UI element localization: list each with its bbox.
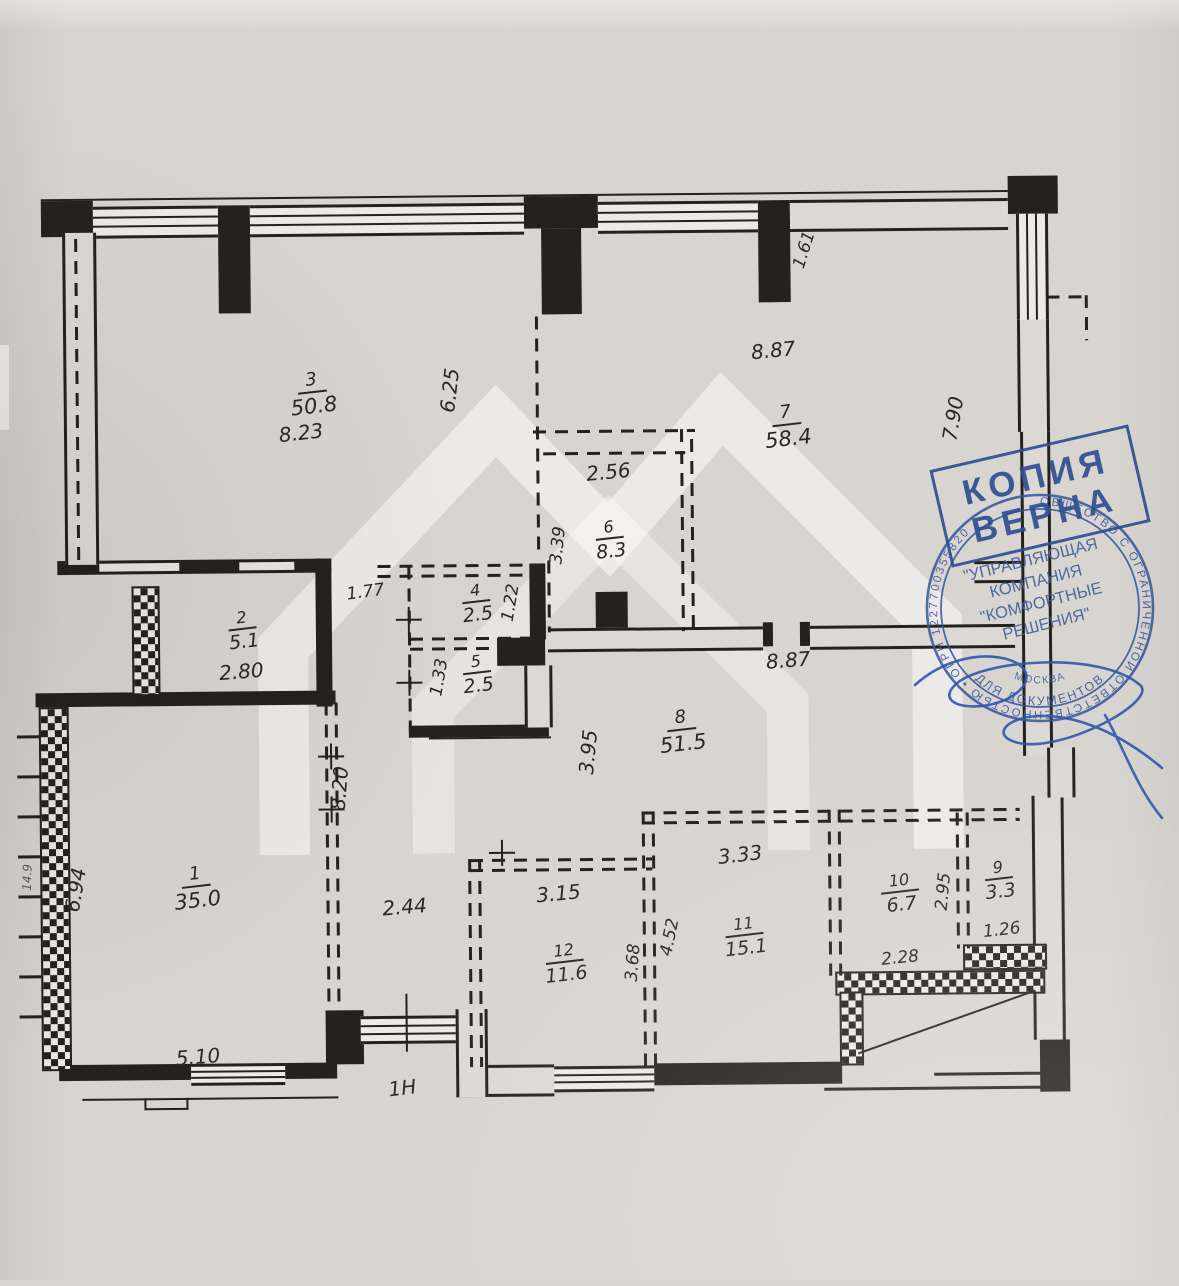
room-area: 2.5 (462, 602, 495, 627)
dim-8.87-top: 8.87 (750, 336, 797, 364)
window-band (250, 203, 524, 238)
wall-segment (315, 558, 332, 706)
dim-3.39: 3.39 (546, 526, 570, 566)
wall-pier (758, 200, 791, 302)
door-jamb (763, 622, 773, 646)
room-label-2: 25.1 (225, 606, 260, 654)
entrance-door-band (361, 1015, 457, 1044)
room-number: 7 (770, 400, 802, 427)
door-shaft-block (596, 592, 628, 630)
room-number: 9 (983, 856, 1014, 881)
room-number: 4 (460, 579, 491, 604)
room-area: 5.1 (228, 629, 261, 654)
hatched-wall (835, 970, 1045, 996)
survey-cross-mark (396, 670, 422, 696)
wall-outline (1017, 320, 1050, 432)
wall-column (524, 196, 598, 229)
dashed-partition-line (1085, 295, 1088, 340)
entrance-label: 1Н (387, 1074, 417, 1101)
dim-8.20: 8.20 (326, 765, 353, 811)
room-label-4: 42.5 (459, 579, 494, 627)
balcony-tick (19, 935, 43, 938)
room-label-3: 350.8 (287, 367, 339, 421)
dim-3.95: 3.95 (574, 729, 602, 776)
room-number: 10 (879, 868, 920, 894)
dim-8.23: 8.23 (278, 418, 325, 447)
wall-outline (524, 665, 553, 727)
window-inset (99, 563, 179, 572)
balcony-tick (17, 775, 41, 778)
room-number: 8 (664, 705, 696, 732)
room-label-11: 1115.1 (721, 912, 768, 962)
room-label-10: 106.7 (879, 868, 922, 917)
balcony-tick (18, 815, 42, 818)
dim-2.95: 2.95 (932, 872, 956, 912)
wall-segment (41, 201, 93, 237)
balcony-tick (18, 855, 42, 858)
room-label-6: 68.3 (592, 516, 627, 564)
room-label-5: 52.5 (460, 650, 495, 698)
dim-1.26: 1.26 (982, 918, 1022, 942)
room-label-8: 851.5 (656, 704, 708, 758)
room-label-7: 758.4 (761, 399, 813, 453)
window-inset (239, 562, 294, 571)
room-label-1: 135.0 (170, 861, 222, 915)
dim-2.44: 2.44 (381, 893, 427, 920)
wall-segment (285, 1062, 337, 1078)
hatched-wall (839, 991, 864, 1065)
wall-corner (1040, 1039, 1070, 1091)
room-area: 6.7 (881, 891, 922, 917)
hatched-wall (131, 586, 160, 696)
wall-segment (35, 690, 335, 707)
wall-outline (790, 198, 1008, 232)
dim-2.80: 2.80 (218, 658, 264, 685)
window-band (1016, 214, 1049, 320)
wall-column (541, 228, 582, 314)
wall-segment (654, 1062, 842, 1086)
survey-cross-mark (489, 840, 515, 866)
wall-corner (1008, 175, 1058, 213)
room-number: 2 (226, 606, 257, 631)
hatched-wall (963, 944, 1047, 971)
wall-corner (326, 1010, 365, 1064)
dim-5.10: 5.10 (175, 1043, 221, 1070)
room-number: 6 (593, 516, 624, 541)
scanned-floor-plan-page: { "colors": {"paper": "#d8d5d0", "ink": … (0, 0, 1179, 1280)
window-band (93, 206, 218, 239)
dashed-partition-line (1047, 295, 1089, 298)
balcony-tick (18, 895, 42, 898)
survey-cross-mark (396, 607, 422, 633)
window-band (598, 200, 758, 234)
signature (900, 590, 1179, 830)
wall-outline (1032, 795, 1066, 1039)
room-label-12: 1211.6 (542, 938, 589, 988)
window-band (554, 1065, 654, 1092)
room-area: 8.3 (595, 539, 628, 564)
dim-left-edge: 14.9 (20, 864, 35, 891)
room-number: 1 (179, 862, 211, 889)
room-label-9: 93.3 (982, 856, 1017, 904)
wall-outline (548, 626, 763, 652)
room-area: 2.5 (462, 673, 495, 698)
room-number: 11 (723, 912, 764, 938)
balcony-tick (19, 975, 43, 978)
dim-3.33: 3.33 (717, 840, 764, 869)
balcony-tick (20, 1015, 44, 1018)
room-number: 3 (295, 368, 327, 395)
wall-segment (59, 1064, 191, 1081)
porch-step-line (144, 1098, 146, 1110)
porch-step-line (186, 1098, 188, 1110)
dim-8.87-mid: 8.87 (765, 646, 811, 673)
dim-3.68: 3.68 (622, 943, 645, 982)
balcony-tick (17, 735, 41, 738)
dim-2.28: 2.28 (880, 946, 920, 970)
room-number: 5 (461, 650, 492, 675)
room-area: 3.3 (984, 879, 1017, 904)
dim-2.56: 2.56 (585, 458, 632, 486)
door-jamb (800, 622, 810, 646)
duct-shaft-block (497, 637, 545, 665)
wall-outline (62, 233, 99, 565)
porch-step-line (144, 1108, 188, 1110)
dim-3.15: 3.15 (535, 879, 582, 907)
wall-pier (218, 205, 251, 313)
room-number: 12 (543, 939, 584, 965)
dim-6.25: 6.25 (435, 367, 464, 414)
